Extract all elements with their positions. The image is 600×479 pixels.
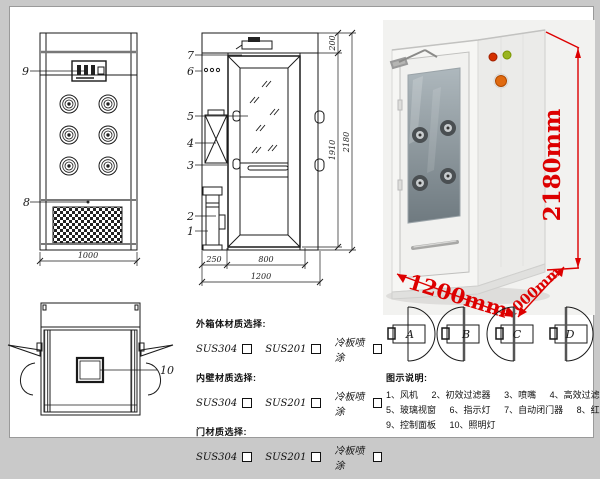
material-checkbox[interactable] [373, 452, 382, 462]
spec-sheet: { "front_view": { "label_9": "9", "label… [0, 0, 600, 450]
side-view-drawing: 7 6 5 4 3 2 1 200 1910 2180 250 800 1200 [178, 15, 370, 305]
indicator-light-red [489, 53, 497, 61]
cabinet-door [398, 52, 469, 278]
material-option-label: SUS201 [265, 398, 306, 409]
material-checkbox[interactable] [373, 398, 382, 408]
air-grille [53, 207, 122, 243]
door-swing-options: A B C [386, 302, 594, 366]
material-option-label: SUS201 [265, 452, 306, 463]
dim-250: 250 [205, 255, 221, 264]
door-option-letter: A [405, 328, 414, 341]
material-section-title: 外箱体材质选择: [196, 317, 382, 330]
legend-item: 1、风机 [386, 390, 418, 400]
material-option-label: SUS304 [196, 398, 237, 409]
product-photo: 2180mm 1200mm 1000mm [383, 20, 595, 315]
dim-200: 200 [328, 35, 337, 51]
door-option-a[interactable]: A [386, 302, 432, 366]
parts-legend: 图示说明: 1、风机 2、初效过滤器 3、喷嘴 4、高效过滤器 5、玻璃视窗 6… [386, 371, 592, 433]
material-checkbox[interactable] [242, 344, 252, 354]
material-section-title: 门材质选择: [196, 425, 382, 438]
emergency-button [496, 76, 507, 87]
part-label-1: 1 [187, 225, 194, 238]
legend-item: 9、控制面板 [386, 420, 436, 430]
dim-1000: 1000 [78, 251, 98, 260]
top-view-drawing: 10 [5, 295, 180, 435]
legend-item: 7、自动闭门器 [504, 405, 563, 415]
material-checkbox[interactable] [311, 452, 321, 462]
legend-item: 6、指示灯 [450, 405, 491, 415]
legend-item: 10、照明灯 [450, 420, 496, 430]
door-option-letter: C [513, 328, 522, 341]
material-checkbox[interactable] [373, 344, 382, 354]
material-checkbox[interactable] [311, 398, 321, 408]
material-checkbox[interactable] [311, 344, 321, 354]
material-options-row: SUS304 SUS201 冷板喷涂 [196, 388, 382, 418]
material-option-label: 冷板喷涂 [334, 334, 368, 364]
dim-2180: 2180 [342, 132, 351, 153]
part-label-6: 6 [187, 65, 194, 78]
legend-item: 2、初效过滤器 [432, 390, 491, 400]
front-view-drawing: 9 8 1000 [0, 25, 178, 287]
part-label-10: 10 [160, 364, 174, 377]
door-option-b[interactable]: B [440, 302, 486, 366]
legend-item: 8、红外线感应器 [577, 405, 600, 415]
door-option-d[interactable]: D [548, 302, 594, 366]
open-door-left [8, 343, 42, 395]
part-label-5: 5 [187, 110, 194, 123]
dim-1910: 1910 [328, 140, 337, 160]
legend-title: 图示说明: [386, 371, 592, 384]
door-option-letter: B [461, 328, 470, 341]
material-checkbox[interactable] [242, 452, 252, 462]
part-label-4: 4 [186, 137, 194, 150]
legend-row: 9、控制面板 10、照明灯 [386, 418, 592, 433]
part-label-8: 8 [23, 196, 30, 209]
part-label-9: 9 [22, 65, 29, 78]
material-checkbox[interactable] [242, 398, 252, 408]
material-selection: 外箱体材质选择: SUS304 SUS201 冷板喷涂 内壁材质选择: SUS3… [196, 317, 382, 479]
part-label-3: 3 [187, 159, 194, 172]
legend-row: 5、玻璃视窗 6、指示灯 7、自动闭门器 8、红外线感应器 [386, 403, 592, 418]
material-option-label: SUS201 [265, 344, 306, 355]
photo-dim-height: 2180mm [539, 109, 566, 222]
dim-800: 800 [258, 255, 273, 264]
part-label-2: 2 [186, 210, 194, 223]
part-label-7: 7 [187, 49, 194, 62]
material-option-label: 冷板喷涂 [334, 442, 368, 472]
legend-item: 5、玻璃视窗 [386, 405, 436, 415]
material-option-label: 冷板喷涂 [334, 388, 368, 418]
material-option-label: SUS304 [196, 344, 237, 355]
dim-1200: 1200 [251, 272, 271, 281]
material-options-row: SUS304 SUS201 冷板喷涂 [196, 334, 382, 364]
material-section-title: 内壁材质选择: [196, 371, 382, 384]
door-option-c[interactable]: C [494, 302, 540, 366]
legend-item: 3、喷嘴 [504, 390, 536, 400]
material-options-row: SUS304 SUS201 冷板喷涂 [196, 442, 382, 472]
legend-row: 1、风机 2、初效过滤器 3、喷嘴 4、高效过滤器 [386, 388, 592, 403]
material-option-label: SUS304 [196, 452, 237, 463]
door-option-letter: D [565, 328, 575, 341]
legend-item: 4、高效过滤器 [550, 390, 600, 400]
indicator-light-green [503, 51, 511, 59]
